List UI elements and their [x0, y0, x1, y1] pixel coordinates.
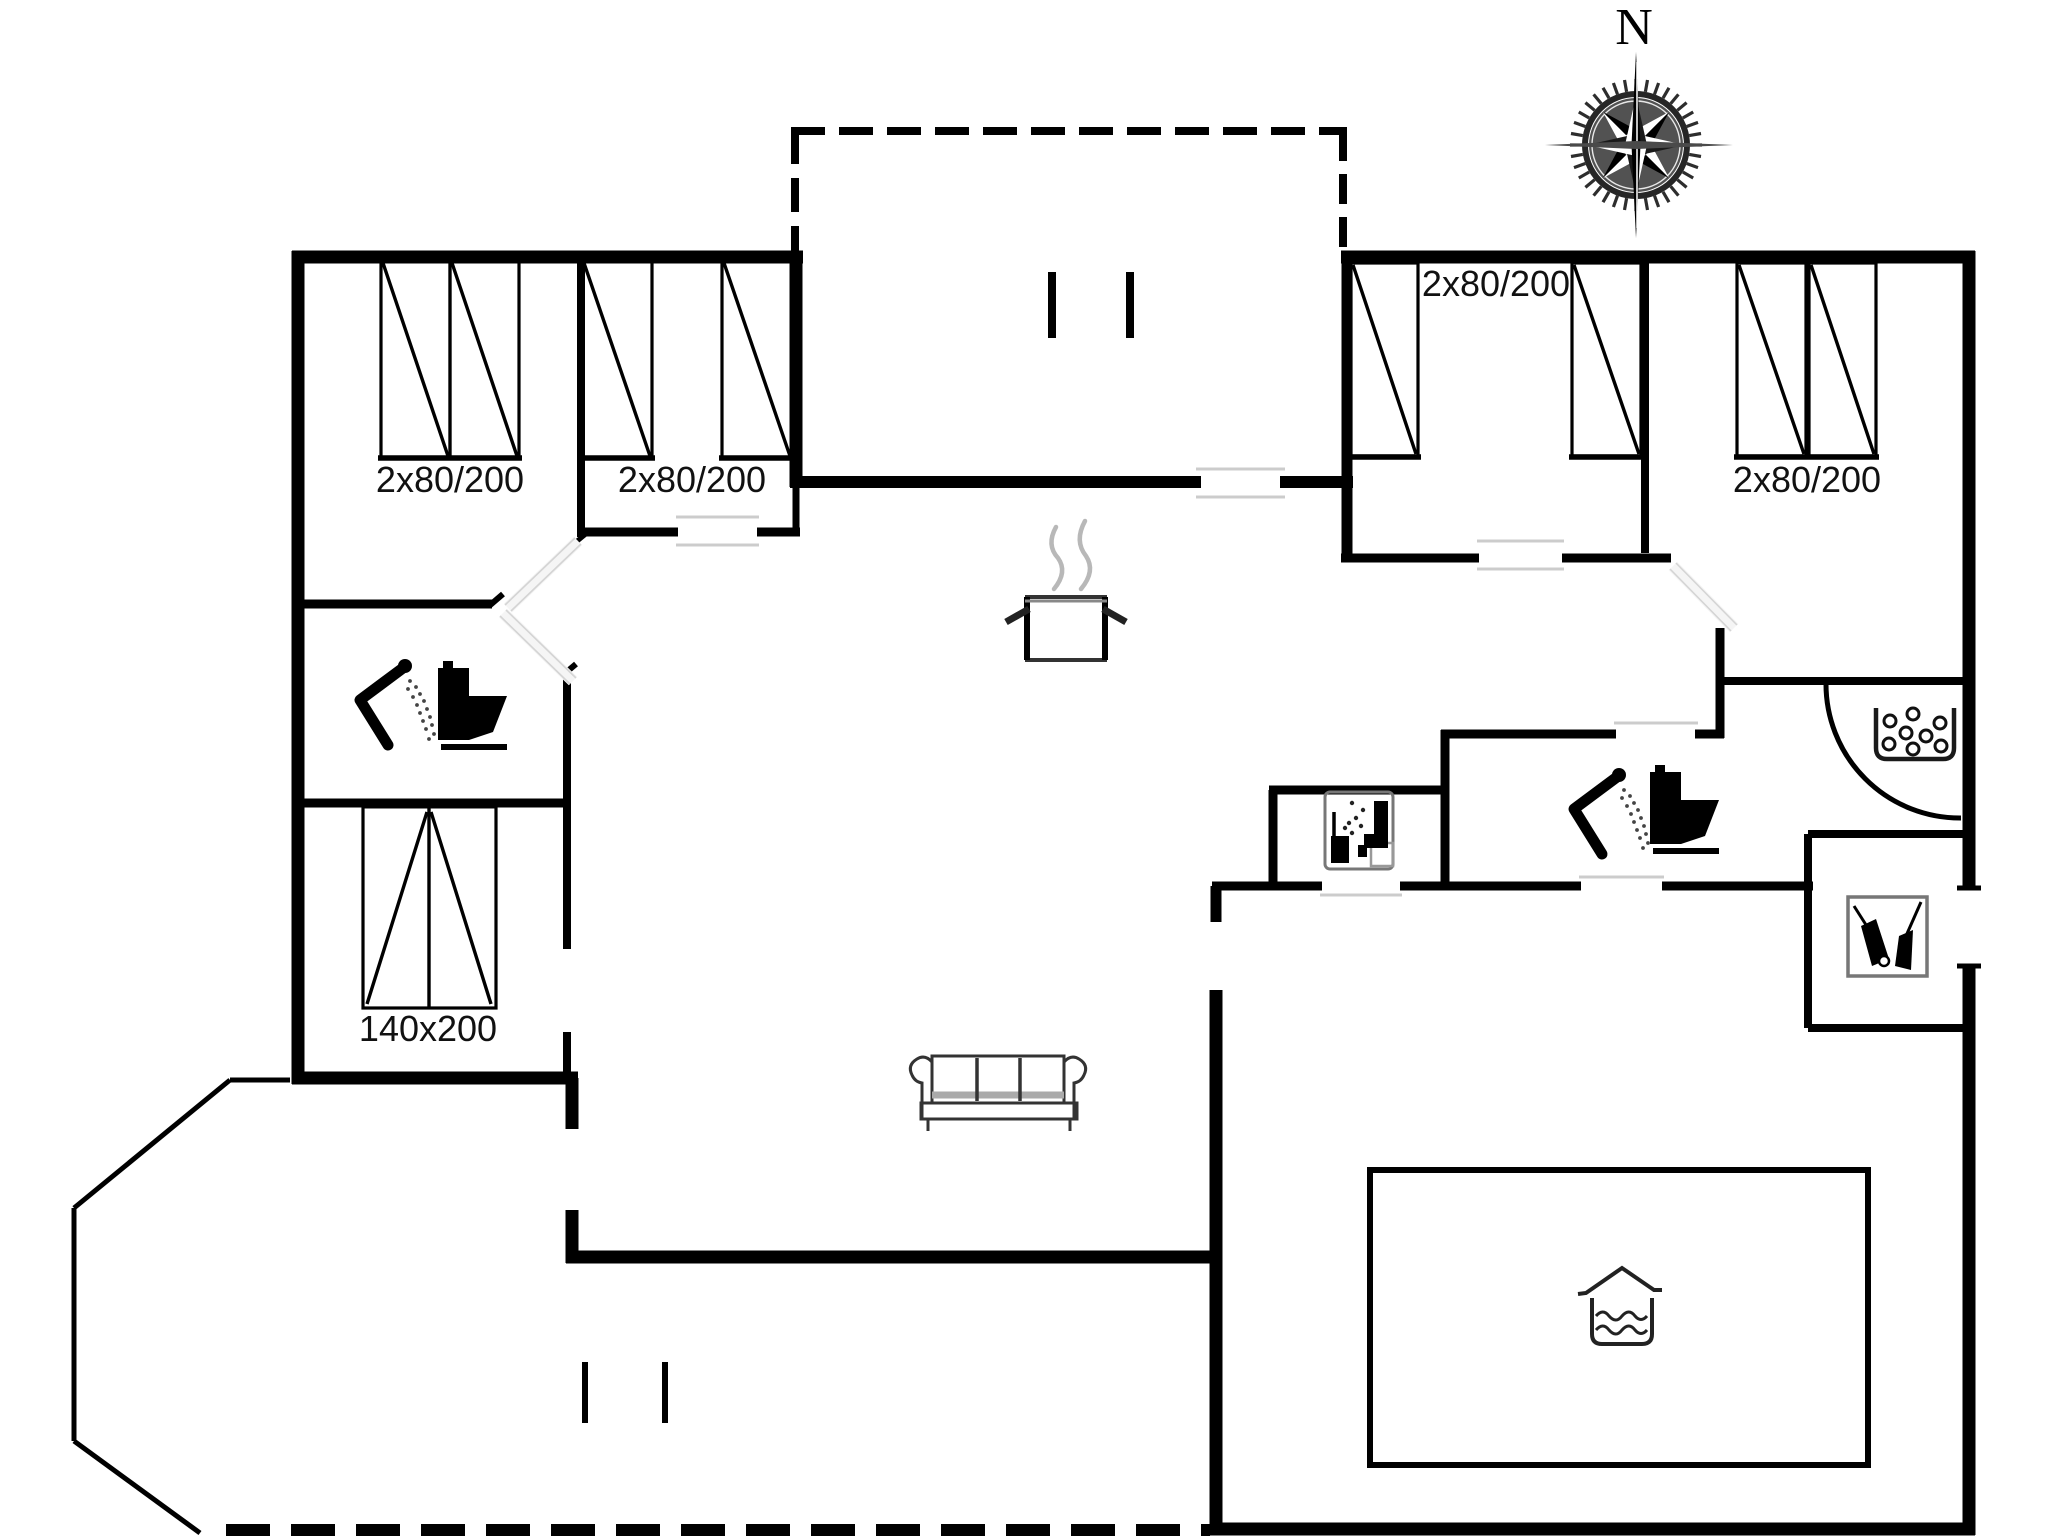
svg-text:2x80/200: 2x80/200 [1422, 263, 1570, 304]
svg-text:2x80/200: 2x80/200 [376, 459, 524, 500]
svg-text:N: N [1615, 0, 1653, 56]
svg-text:2x80/200: 2x80/200 [1733, 459, 1881, 500]
svg-text:140x200: 140x200 [359, 1008, 497, 1049]
svg-text:2x80/200: 2x80/200 [618, 459, 766, 500]
